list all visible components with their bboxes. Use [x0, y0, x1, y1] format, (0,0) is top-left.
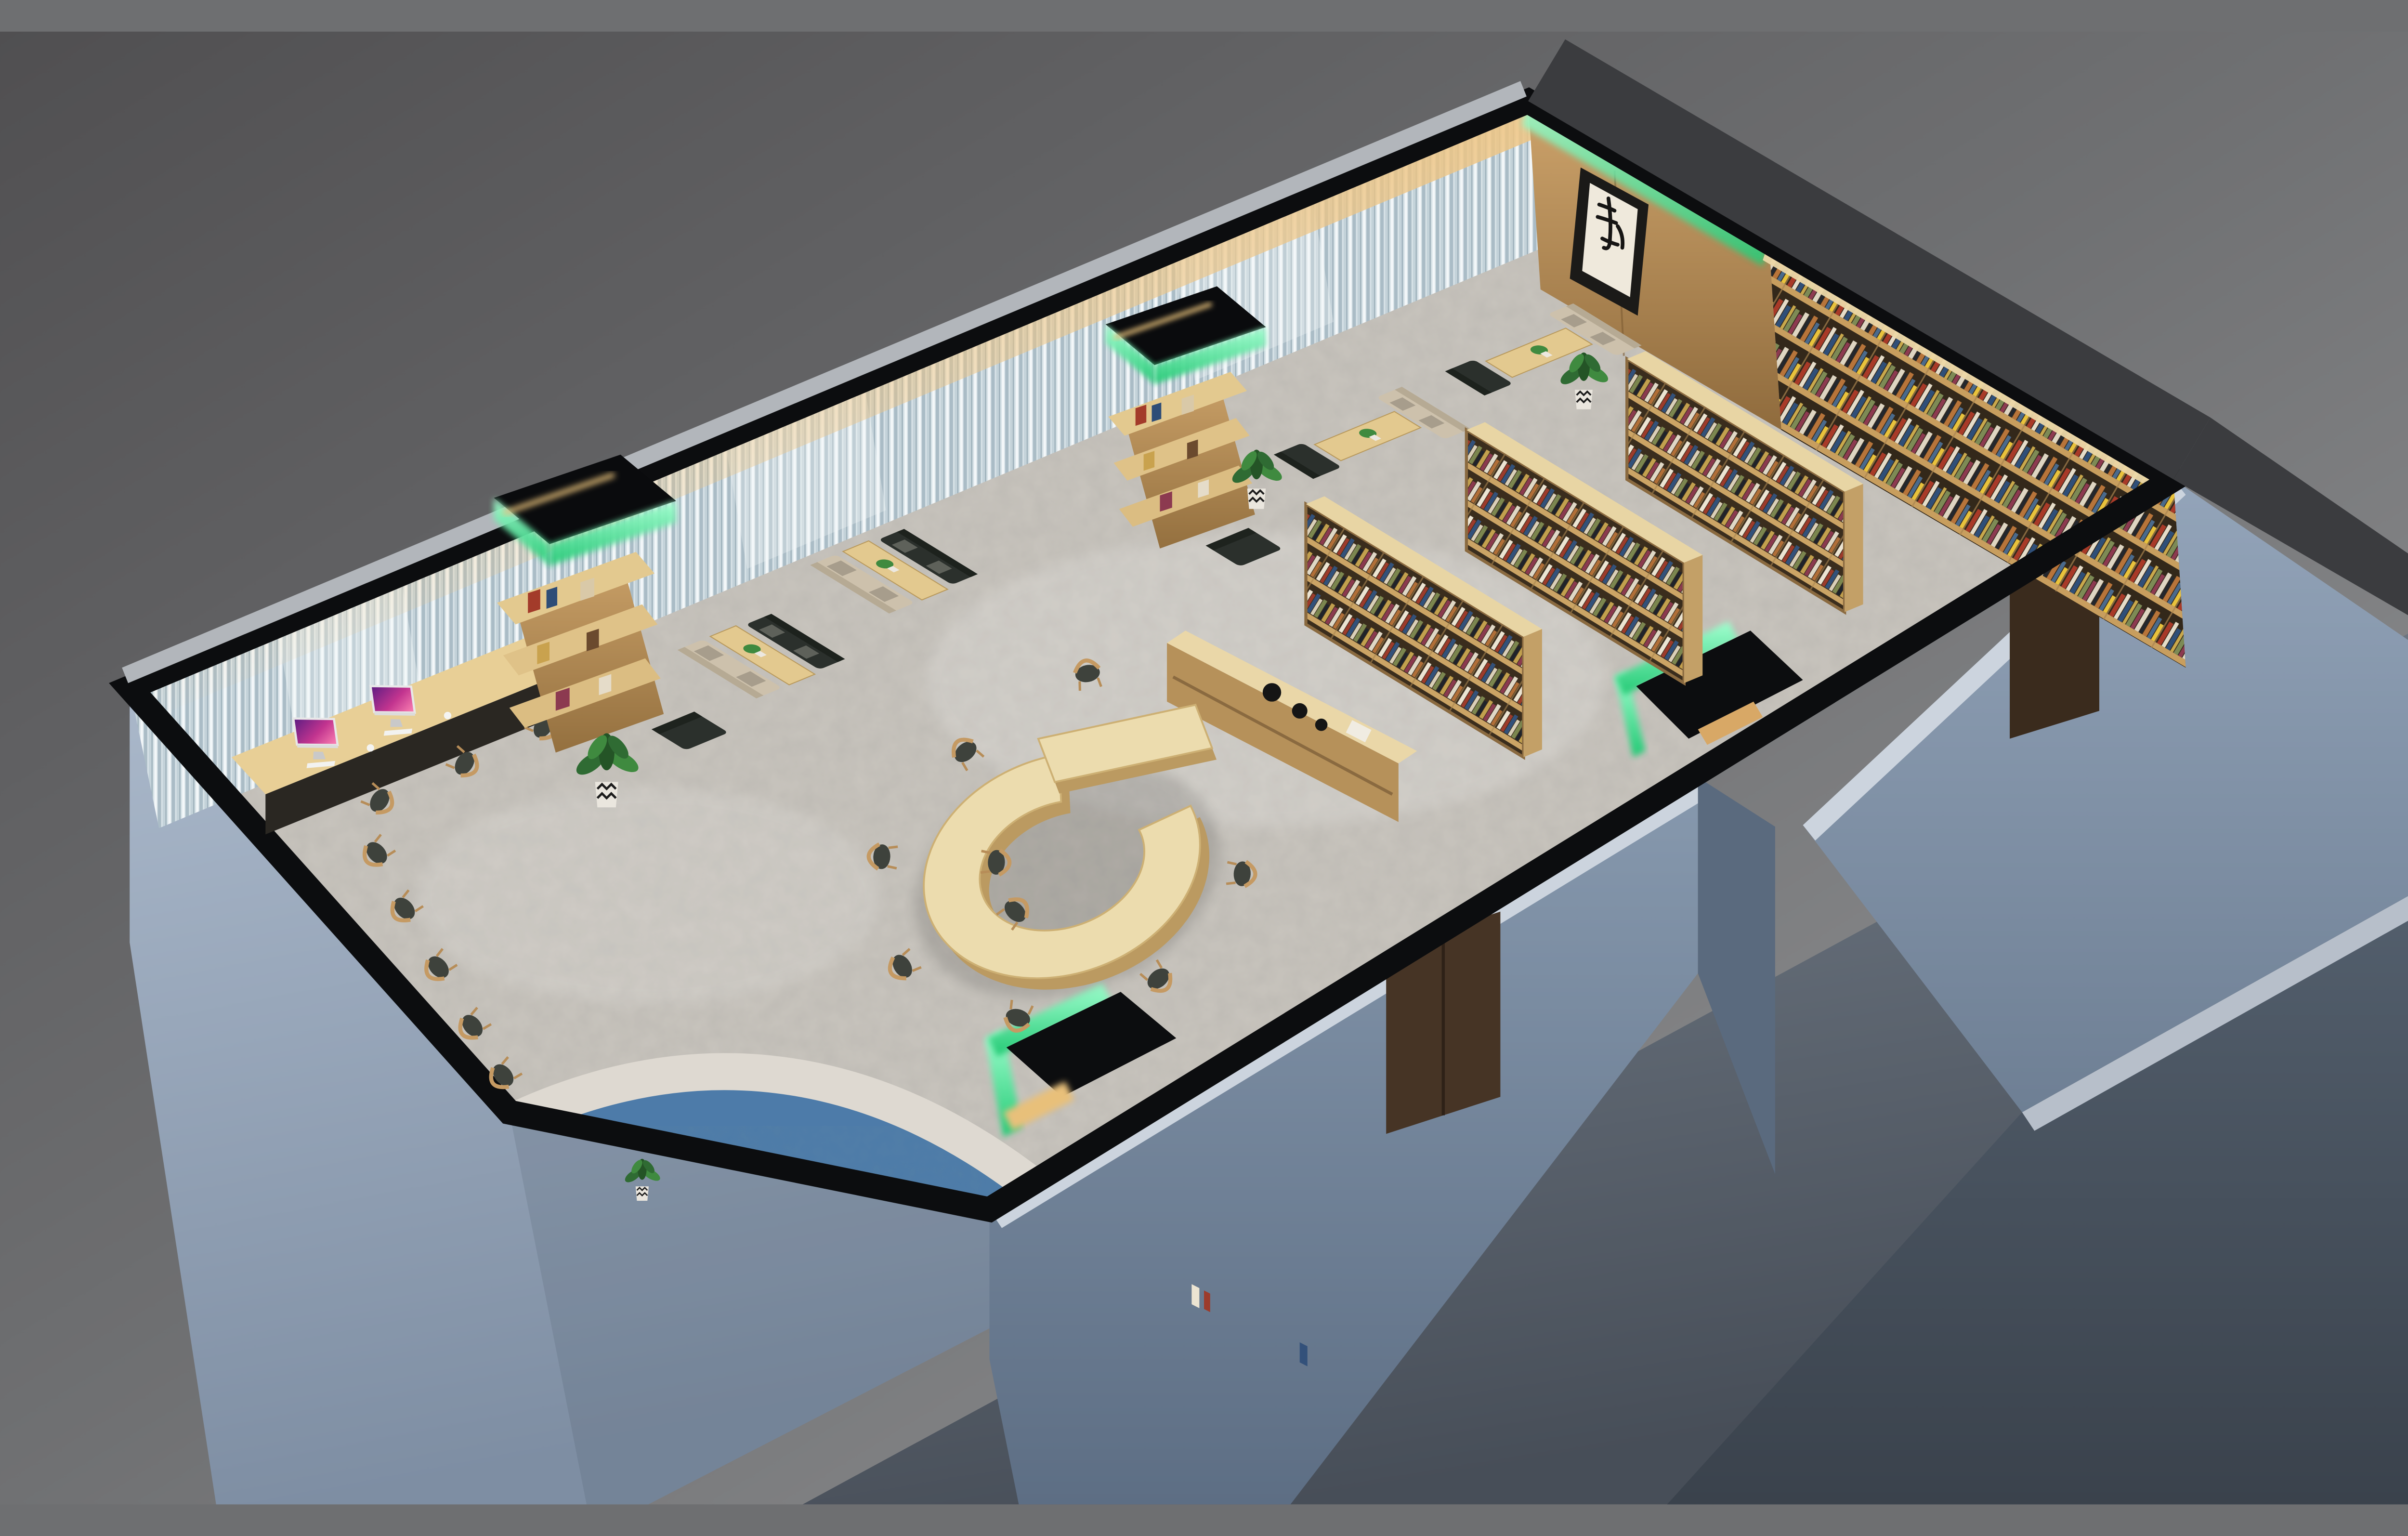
scene-svg: 静 [0, 0, 2408, 1536]
sideboard-vase-3 [1315, 719, 1328, 731]
floor-light-patch-2 [417, 788, 880, 1004]
sideboard-book-1 [1191, 1284, 1199, 1308]
mouse-2 [444, 712, 451, 719]
sideboard-vase-1 [1263, 683, 1281, 701]
mouse-1 [367, 744, 374, 751]
sideboard-book-3 [1300, 1342, 1308, 1366]
sideboard-book-2 [1204, 1290, 1210, 1312]
sideboard-vase-2 [1292, 703, 1308, 719]
render-canvas: 静 [0, 0, 2408, 1536]
